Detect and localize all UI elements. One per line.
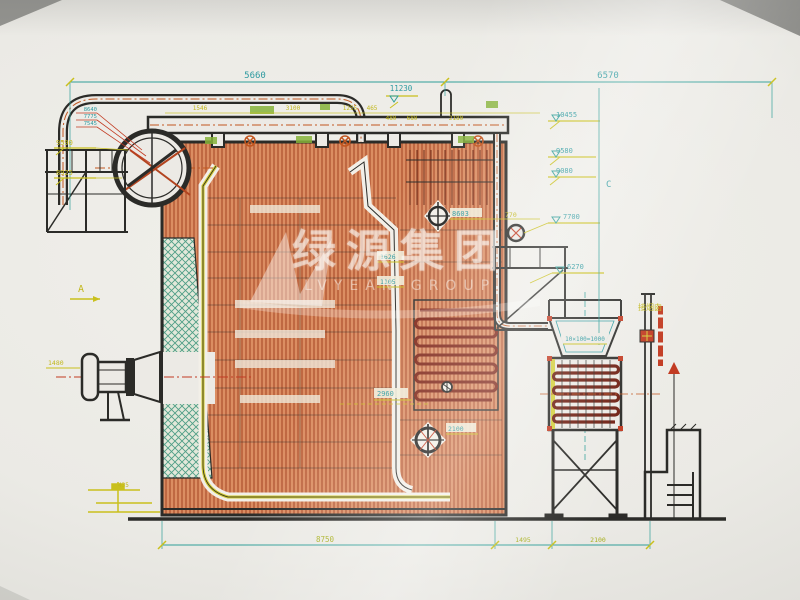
section-line-c: C (599, 88, 611, 345)
label-tube-spacing: 10×100=1000 (565, 336, 605, 343)
dim-2100: 2100 (590, 536, 606, 544)
stairs (645, 424, 700, 519)
level-7545: 7545 (84, 121, 97, 127)
economizer-legs (545, 430, 627, 519)
economizer-unit (540, 292, 660, 519)
datum-target-small (442, 382, 452, 392)
dim-3100: 3100 (286, 105, 301, 112)
dim-1255: 1255 (343, 105, 358, 112)
label-1105: 1105 (380, 278, 396, 286)
economizer-coil-box (540, 356, 660, 431)
dim-2180: 2180 (449, 115, 464, 122)
dim-top-left-label: 5660 (244, 71, 266, 81)
level-9080: 9080 (548, 167, 596, 185)
dim-8750: 8750 (316, 535, 335, 544)
label-2960: 2960 (377, 390, 394, 398)
level-7700-label: 7700 (563, 213, 580, 221)
label-1626: 1626 (380, 253, 396, 261)
photographed-boiler-drawing: 5660 6570 11230 1546 3100 1255 465 480 6… (0, 0, 800, 600)
label-770: 770 (505, 211, 517, 219)
dim-top-right-label: 6570 (597, 71, 619, 81)
dim-bottom: 8750 1495 2100 (158, 521, 654, 549)
boiler-cross-section-drawing: 5660 6570 11230 1546 3100 1255 465 480 6… (0, 0, 800, 600)
level-9580: 9580 (548, 147, 596, 165)
level-6270-label: 6270 (567, 263, 584, 271)
dim-1495: 1495 (515, 536, 531, 544)
level-11230: 11230 (386, 84, 418, 108)
label-8603: 8603 (452, 210, 469, 218)
level-6270: 6270 (530, 263, 604, 283)
label-1480: 1480 (48, 359, 64, 367)
level-10455: 10455 (548, 111, 600, 129)
annotation-tube-spacing: 10×100=1000 (561, 333, 609, 344)
dim-680: 680 (407, 115, 418, 122)
label-435: 435 (118, 482, 129, 489)
chimney-pipe (640, 294, 655, 519)
dim-465: 465 (367, 105, 378, 112)
section-a-label: A (78, 284, 84, 295)
level-7700: 7700 (524, 213, 600, 233)
level-9590-label: 9590 (56, 139, 73, 147)
section-a-marker: A (70, 284, 100, 302)
level-11230-label: 11230 (390, 84, 413, 93)
level-8640: 8640 (84, 107, 97, 113)
valve-770-icon (508, 225, 524, 241)
level-8925-label: 8925 (56, 169, 73, 177)
label-2100-datum: 2100 (448, 425, 464, 433)
label-chimney-note: 接烟囱 (638, 302, 662, 312)
flag-marker (658, 306, 680, 519)
dim-480: 480 (386, 115, 397, 122)
section-c-label: C (606, 180, 611, 190)
economizer-hopper (547, 300, 623, 356)
dim-1546: 1546 (193, 105, 208, 112)
level-7775: 7775 (84, 114, 97, 120)
